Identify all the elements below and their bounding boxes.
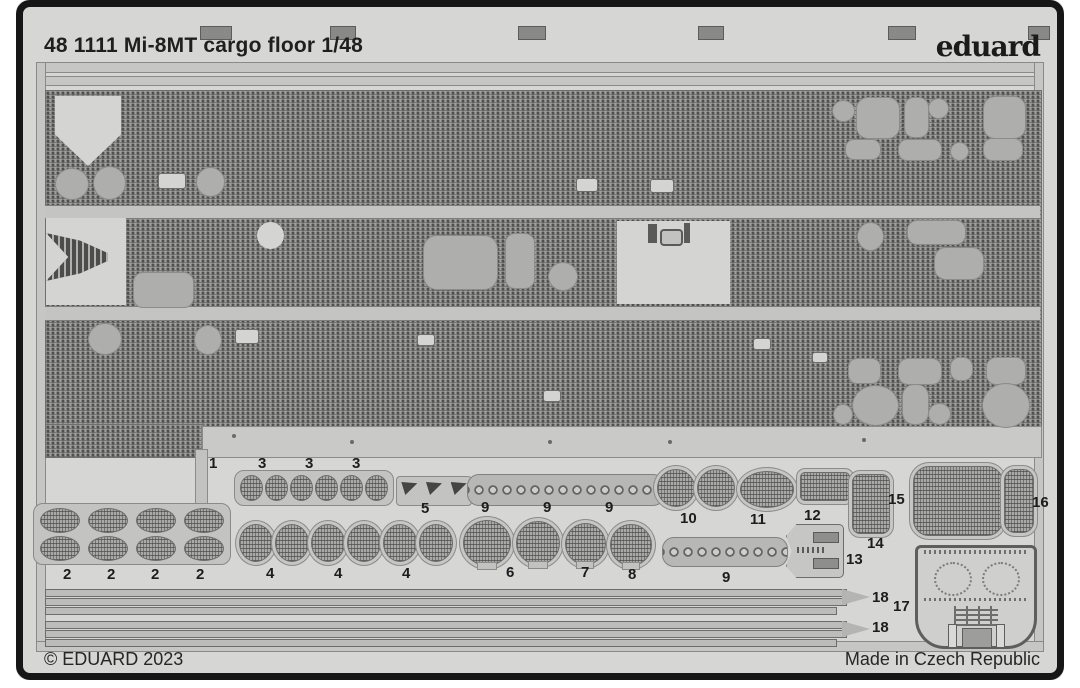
product-title: 48 1111 Mi-8MT cargo floor 1/48	[44, 34, 363, 58]
part-16-panel	[1004, 469, 1034, 533]
plain-disc	[852, 385, 899, 426]
part-4-disc	[347, 524, 381, 562]
part-10-disc	[657, 469, 695, 507]
plain-disc	[950, 142, 969, 161]
plain-disc	[548, 262, 578, 291]
part-label-9: 9	[722, 569, 730, 586]
part-17-dotted-oval	[934, 562, 972, 596]
part-7-disc	[565, 523, 606, 565]
panel-separator-strip	[45, 205, 1040, 219]
part-label-1: 1	[209, 455, 217, 472]
part-label-4: 4	[266, 565, 274, 582]
tiedown-bar-part	[684, 223, 690, 243]
plain-disc	[982, 383, 1030, 428]
brand-logo: eduard	[930, 30, 1040, 63]
part-2-disc	[184, 508, 224, 533]
part-label-15: 15	[888, 491, 905, 508]
plain-pad	[907, 220, 966, 245]
plain-pad	[845, 139, 881, 160]
made-in-text: Made in Czech Republic	[760, 649, 1040, 670]
part-2-disc	[40, 508, 80, 533]
plain-disc	[196, 167, 225, 197]
part-17-center-pad	[962, 628, 992, 648]
plain-pad	[904, 97, 929, 138]
part-15-panel	[913, 466, 1003, 536]
part-5-bar	[396, 476, 472, 506]
part-18-rail	[45, 607, 837, 615]
plain-disc	[55, 168, 89, 200]
part-label-13: 13	[846, 551, 863, 568]
fret-frame-top	[36, 62, 1044, 73]
part-18-rail	[45, 630, 847, 638]
plain-pad	[856, 97, 900, 139]
rivet-hole	[548, 440, 552, 444]
part-17-bar	[996, 624, 1005, 648]
part-5-triangle	[401, 482, 417, 495]
fret-tab	[698, 26, 724, 40]
part-4-disc	[311, 524, 345, 562]
small-etched-fitting	[543, 390, 561, 402]
part-label-4: 4	[402, 565, 410, 582]
part-13-slot	[813, 558, 839, 569]
part-17-dotted-row	[924, 550, 1028, 554]
part-label-9: 9	[605, 499, 613, 516]
plain-pad	[505, 233, 535, 289]
copyright-text: © EDUARD 2023	[44, 649, 183, 670]
part-10-disc	[697, 469, 735, 507]
part-13-slot	[813, 532, 839, 543]
part-label-3: 3	[305, 455, 313, 472]
plain-pad	[983, 96, 1026, 139]
part-4-disc	[383, 524, 417, 562]
fret-frame-top-inner	[45, 76, 1042, 86]
plain-pad	[898, 139, 942, 161]
panel-separator-strip	[45, 306, 1040, 321]
part-8-disc	[610, 524, 652, 566]
part-label-9: 9	[481, 499, 489, 516]
fret-tab	[518, 26, 546, 40]
part-label-2: 2	[63, 566, 71, 583]
plain-pad	[848, 358, 881, 384]
part-2-disc	[184, 536, 224, 561]
rivet-hole	[232, 434, 236, 438]
plain-pad	[986, 357, 1026, 385]
part-18-rail	[45, 639, 837, 647]
rivet-hole	[350, 440, 354, 444]
plain-disc	[93, 166, 126, 200]
small-etched-fitting	[812, 352, 828, 363]
part-17-plate	[915, 545, 1037, 649]
part-3-holder	[234, 470, 394, 506]
small-etched-fitting	[417, 334, 435, 346]
round-cutout	[257, 222, 284, 249]
small-etched-fitting	[235, 329, 259, 344]
part-3-disc	[265, 475, 288, 501]
part-3-disc	[240, 475, 263, 501]
plain-disc	[928, 98, 949, 119]
part-label-18: 18	[872, 619, 889, 636]
plain-disc	[857, 222, 884, 251]
part-label-16: 16	[1032, 494, 1049, 511]
part-18-rail	[45, 598, 847, 606]
part-12-plate	[800, 472, 850, 501]
fret-tab	[888, 26, 916, 40]
part-17-bar	[948, 624, 957, 648]
plain-disc	[833, 404, 853, 425]
part-label-12: 12	[804, 507, 821, 524]
part-2-disc	[88, 508, 128, 533]
part-label-9: 9	[543, 499, 551, 516]
part-6-tab	[528, 561, 548, 569]
part-2-disc	[40, 536, 80, 561]
part-4-disc	[275, 524, 309, 562]
part-2-disc	[136, 508, 176, 533]
part-label-7: 7	[581, 564, 589, 581]
panel-bottom-sill-strip	[202, 426, 1042, 458]
part-3-disc	[315, 475, 338, 501]
part-label-14: 14	[867, 535, 884, 552]
part-17-dotted-row	[924, 598, 1028, 601]
part-label-11: 11	[750, 511, 766, 528]
part-2-holder	[33, 503, 231, 565]
part-6-tab	[477, 562, 497, 570]
part-label-2: 2	[196, 566, 204, 583]
plain-pad	[983, 138, 1023, 161]
plain-disc	[832, 100, 855, 122]
part-17-dotted-grid	[954, 606, 998, 626]
part-13-buckle	[786, 524, 844, 578]
plain-pad	[898, 358, 942, 385]
small-etched-fitting	[753, 338, 771, 350]
part-6-disc	[463, 520, 511, 566]
small-etched-fitting	[650, 179, 674, 193]
part-label-8: 8	[628, 566, 636, 583]
cargo-floor-panel-left-extension	[45, 424, 204, 458]
part-6-disc	[516, 521, 560, 565]
plain-pad	[423, 235, 498, 290]
part-label-4: 4	[334, 565, 342, 582]
part-18-rail	[45, 621, 847, 629]
small-etched-fitting	[576, 178, 598, 192]
part-4-disc	[239, 524, 273, 562]
part-label-6: 6	[506, 564, 514, 581]
part-4-disc	[419, 524, 453, 562]
tiedown-bar-part	[648, 224, 657, 243]
part-14-plate	[852, 474, 890, 534]
part-2-disc	[136, 536, 176, 561]
part-label-17: 17	[893, 598, 910, 615]
part-label-10: 10	[680, 510, 697, 527]
part-label-5: 5	[421, 500, 429, 517]
part-label-3: 3	[258, 455, 266, 472]
part-label-2: 2	[151, 566, 159, 583]
part-label-2: 2	[107, 566, 115, 583]
part-3-disc	[290, 475, 313, 501]
plain-disc	[928, 403, 951, 425]
part-9-strip-upper	[467, 474, 665, 506]
part-13-teeth	[797, 547, 827, 553]
part-3-disc	[365, 475, 388, 501]
part-11-oval	[740, 471, 794, 508]
part-9-strip-lower	[662, 537, 788, 567]
cargo-floor-panel	[45, 90, 1042, 428]
part-3-disc	[340, 475, 363, 501]
part-5-triangle	[426, 482, 442, 495]
product-photo: 48 1111 Mi-8MT cargo floor 1/48 eduard	[0, 0, 1080, 688]
plain-pad	[934, 247, 984, 280]
part-label-18: 18	[872, 589, 889, 606]
plain-disc	[194, 325, 222, 355]
rivet-hole	[668, 440, 672, 444]
plain-pad	[133, 272, 194, 308]
plain-disc	[950, 357, 973, 381]
small-etched-fitting	[158, 173, 186, 189]
tiedown-ring-part	[660, 229, 683, 246]
part-2-disc	[88, 536, 128, 561]
rivet-hole	[862, 438, 866, 442]
part-5-triangle	[451, 482, 467, 495]
plain-pad	[902, 384, 929, 425]
plain-disc	[88, 323, 122, 355]
part-17-dotted-oval	[982, 562, 1020, 596]
part-label-3: 3	[352, 455, 360, 472]
part-18-rail	[45, 589, 847, 597]
